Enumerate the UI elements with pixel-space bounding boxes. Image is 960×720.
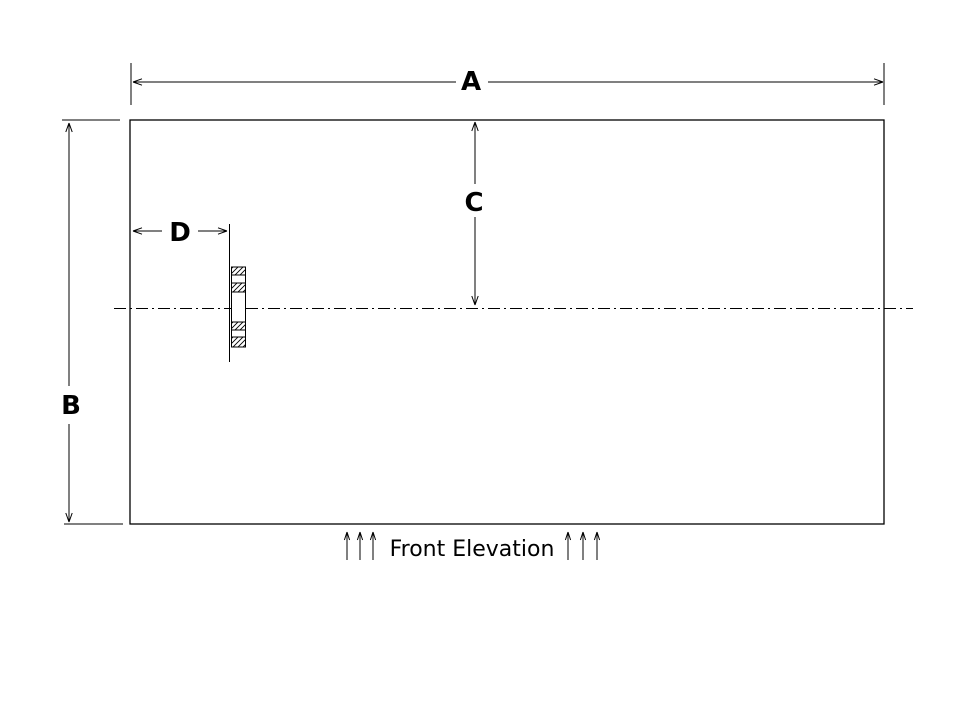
fitting-hatch-segment (232, 283, 246, 292)
hatched-fitting (232, 267, 246, 347)
dimension-c-label: C (464, 188, 483, 218)
caption-right-arrows (565, 532, 599, 560)
up-arrow-icon (580, 532, 585, 560)
up-arrow-icon (344, 532, 349, 560)
dimension-b-label: B (61, 391, 81, 421)
front-elevation-drawing: A B C D Front Ele (0, 0, 960, 720)
dimension-a (131, 63, 884, 105)
dimension-d-label: D (169, 218, 191, 248)
fitting-hatch-segment (232, 322, 246, 330)
up-arrow-icon (370, 532, 375, 560)
up-arrow-icon (594, 532, 599, 560)
fitting-plain-segment (232, 330, 246, 337)
fitting-hatch-segment (232, 337, 246, 347)
caption-left-arrows (344, 532, 375, 560)
dimension-a-label: A (461, 67, 481, 97)
fitting-plain-segment (232, 292, 246, 322)
fitting-hatch-segment (232, 267, 246, 275)
dimension-b (62, 120, 123, 524)
drawing-caption: Front Elevation (390, 537, 555, 562)
up-arrow-icon (357, 532, 362, 560)
drawing-canvas: A B C D Front Ele (0, 0, 960, 720)
fitting-plain-segment (232, 275, 246, 283)
up-arrow-icon (565, 532, 570, 560)
